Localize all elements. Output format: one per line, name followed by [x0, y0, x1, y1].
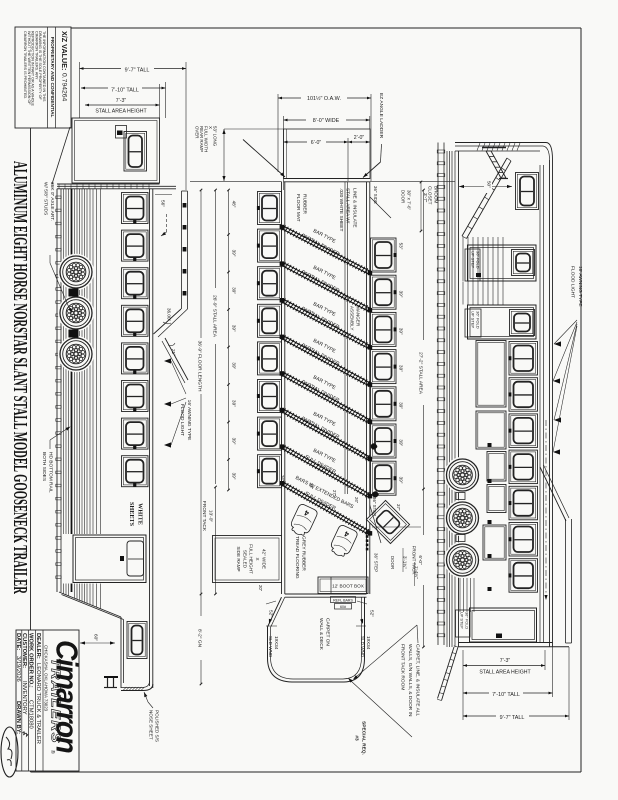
svg-text:ASSEMBLY: ASSEMBLY [349, 306, 354, 330]
svg-text:3/19/2026: 3/19/2026 [15, 656, 21, 682]
svg-text:39": 39" [399, 477, 404, 484]
svg-text:2’-0": 2’-0" [354, 135, 365, 141]
svg-text:16' AWNING TYPE: 16' AWNING TYPE [186, 400, 192, 441]
svg-text:MANGER: MANGER [356, 306, 361, 327]
svg-text:27'-2" STALL AREA: 27'-2" STALL AREA [418, 352, 424, 395]
svg-text:19X34: 19X34 [366, 636, 371, 650]
svg-text:WORK ORDER NO.:: WORK ORDER NO.: [28, 633, 34, 688]
svg-text:12' BOOT BOX: 12' BOOT BOX [332, 584, 365, 589]
svg-text:DRAWN BY:: DRAWN BY: [15, 701, 21, 734]
svg-text:39": 39" [232, 438, 237, 445]
svg-text:#3: #3 [354, 735, 360, 741]
svg-text:WALLS, G/N WALLS, & DOOR IN: WALLS, G/N WALLS, & DOOR IN [407, 644, 413, 717]
svg-text:CHICKASHA, OKLAHOMA 73023: CHICKASHA, OKLAHOMA 73023 [44, 645, 49, 712]
svg-text:SEALED: SEALED [242, 550, 247, 569]
svg-text:CUSTOMER:: CUSTOMER: [21, 633, 27, 668]
svg-text:39": 39" [232, 400, 237, 407]
svg-text:LINE & INSULATE: LINE & INSULATE [352, 188, 358, 228]
svg-text:GREY RUBBER: GREY RUBBER [301, 536, 307, 571]
svg-text:UP STEP: UP STEP [470, 311, 475, 328]
svg-text:16' AWNING TYPE: 16' AWNING TYPE [577, 266, 583, 307]
svg-text:39": 39" [399, 402, 404, 409]
svg-text:27": 27" [332, 490, 337, 497]
svg-text:52": 52" [369, 610, 375, 617]
svg-text:FRONT TACK ROOM: FRONT TACK ROOM [400, 644, 406, 690]
svg-text:36" SIDE: 36" SIDE [373, 186, 378, 204]
svg-text:CIMARRON TRAILERS IS PROHIBITE: CIMARRON TRAILERS IS PROHIBITED. [23, 31, 27, 99]
svg-text:FULL HEIGHT: FULL HEIGHT [249, 544, 254, 574]
svg-text:39": 39" [399, 291, 404, 298]
svg-text:9’-7" TALL: 9’-7" TALL [500, 715, 525, 721]
svg-text:36" STEP: 36" STEP [372, 497, 377, 516]
svg-text:UP STEP: UP STEP [460, 612, 465, 629]
svg-text:10'-0": 10'-0" [208, 510, 214, 523]
svg-text:7’-10" TALL: 7’-10" TALL [492, 692, 520, 698]
svg-text:POLISHED S/S: POLISHED S/S [155, 710, 160, 742]
svg-text:60#: 60# [340, 605, 346, 609]
svg-text:UP STEP: UP STEP [470, 251, 475, 268]
svg-text:TRAILERS: TRAILERS [49, 658, 64, 744]
svg-text:39": 39" [232, 287, 237, 294]
svg-text:FRONT TACK: FRONT TACK [201, 501, 207, 532]
svg-text:8’-0" WIDE: 8’-0" WIDE [313, 118, 340, 124]
svg-text:SHEETS: SHEETS [128, 502, 135, 527]
svg-text:36.00": 36.00" [167, 308, 172, 321]
svg-text:22": 22" [309, 483, 314, 490]
svg-text:X: X [255, 557, 260, 560]
svg-text:101½" O.A.W.: 101½" O.A.W. [307, 95, 341, 102]
svg-text:39": 39" [232, 362, 237, 369]
svg-text:36" STEP: 36" STEP [374, 553, 379, 572]
svg-text:TREAD FLOORING: TREAD FLOORING [294, 536, 300, 579]
svg-text:20": 20" [258, 585, 263, 592]
svg-text:50": 50" [487, 181, 492, 188]
svg-text:INVENTORY: INVENTORY [21, 681, 27, 715]
svg-text:39": 39" [399, 439, 404, 446]
svg-text:STALL AREA W/: STALL AREA W/ [345, 188, 351, 224]
svg-text:DOOR: DOOR [401, 190, 406, 203]
svg-text:SLD WND: SLD WND [268, 636, 273, 658]
svg-text:®: ® [49, 750, 56, 754]
svg-text:SLD WND: SLD WND [360, 636, 365, 658]
svg-text:FLOOD LIGHT: FLOOD LIGHT [570, 266, 576, 298]
svg-text:6'-0": 6'-0" [418, 555, 423, 565]
svg-text:4: 4 [302, 508, 310, 518]
svg-text:9’-7" TALL: 9’-7" TALL [125, 68, 150, 74]
svg-text:X/Z VALUE:: X/Z VALUE: [60, 31, 69, 70]
svg-text:53" LONG: 53" LONG [213, 126, 218, 147]
svg-text:56": 56" [160, 200, 166, 207]
svg-text:REFL BARS: REFL BARS [333, 598, 353, 602]
svg-text:4: 4 [342, 529, 350, 539]
svg-text:8'-2" GN: 8'-2" GN [197, 629, 203, 648]
svg-text:52": 52" [268, 610, 274, 617]
svg-text:26": 26" [280, 475, 285, 482]
svg-text:CLOSET: CLOSET [427, 186, 432, 205]
svg-text:WHITE: WHITE [137, 503, 144, 525]
svg-text:FRONT TACK: FRONT TACK [412, 546, 417, 576]
svg-text:DATE:: DATE: [15, 633, 21, 650]
svg-text:BOTH SIDES: BOTH SIDES [41, 452, 47, 481]
svg-text:RUBBER: RUBBER [302, 194, 308, 215]
svg-text:19X34: 19X34 [274, 636, 279, 650]
svg-text:60": 60" [93, 634, 99, 641]
svg-text:CARPET ON: CARPET ON [325, 618, 331, 646]
svg-text:DEALER:: DEALER: [35, 633, 41, 659]
svg-text:26": 26" [354, 497, 359, 504]
svg-text:7’-3": 7’-3" [116, 98, 127, 104]
svg-text:36K 0" AXLE ART.: 36K 0" AXLE ART. [49, 182, 55, 221]
svg-text:ALUMINUM EIGHT HORSE NORSTAR S: ALUMINUM EIGHT HORSE NORSTAR SLANT STALL… [9, 161, 30, 594]
svg-text:PROPRIETARY AND CONFIDENTIAL: PROPRIETARY AND CONFIDENTIAL [50, 37, 55, 118]
svg-text:39": 39" [399, 328, 404, 335]
svg-text:W/ 5/8" STUDS: W/ 5/8" STUDS [43, 182, 49, 215]
svg-text:LEONARD TRUCK & TRAILER: LEONARD TRUCK & TRAILER [35, 663, 41, 744]
svg-text:6’-0": 6’-0" [311, 140, 322, 146]
svg-text:42" WIDE: 42" WIDE [262, 549, 267, 569]
svg-text:39": 39" [232, 473, 237, 480]
svg-text:NOSE SHEET: NOSE SHEET [148, 710, 153, 740]
svg-text:SIDE RAMP: SIDE RAMP [236, 546, 241, 571]
svg-text:30" x 7’-6": 30" x 7’-6" [407, 190, 412, 210]
svg-text:26'-9" STALL AREA: 26'-9" STALL AREA [212, 295, 218, 338]
svg-text:CARPET, LINE, & INSULATE ALL: CARPET, LINE, & INSULATE ALL [415, 644, 421, 716]
svg-text:39": 39" [399, 365, 404, 372]
svg-text:HD BOTTOM RAIL: HD BOTTOM RAIL [48, 452, 54, 493]
svg-text:STALL AREA HEIGHT: STALL AREA HEIGHT [479, 670, 531, 676]
svg-text:7’-10" TALL: 7’-10" TALL [111, 88, 139, 94]
svg-text:CTM18080: CTM18080 [28, 700, 34, 729]
svg-text:FLOOR MAT: FLOOR MAT [295, 194, 301, 222]
svg-text:7’-3": 7’-3" [500, 658, 511, 664]
svg-text:EZ ANGLE LADDER: EZ ANGLE LADDER [378, 93, 384, 139]
svg-text:0.794264: 0.794264 [60, 73, 67, 102]
svg-text:39": 39" [232, 325, 237, 332]
svg-text:36'-9" FLOOR LENGTH: 36'-9" FLOOR LENGTH [197, 341, 203, 392]
svg-text:53": 53" [399, 243, 404, 250]
svg-text:DOOR: DOOR [390, 556, 395, 569]
svg-text:.030 WHITE SHEET: .030 WHITE SHEET [338, 188, 344, 232]
svg-text:39": 39" [232, 250, 237, 257]
svg-text:37": 37" [396, 504, 401, 511]
svg-text:21°: 21° [171, 349, 176, 356]
svg-text:STALL AREA HEIGHT: STALL AREA HEIGHT [95, 109, 147, 115]
svg-text:SPECIAL REQ.: SPECIAL REQ. [361, 721, 367, 755]
svg-text:WALL & DECK: WALL & DECK [318, 618, 324, 651]
svg-text:48": 48" [232, 201, 237, 208]
svg-text:OVER: OVER [195, 126, 200, 138]
